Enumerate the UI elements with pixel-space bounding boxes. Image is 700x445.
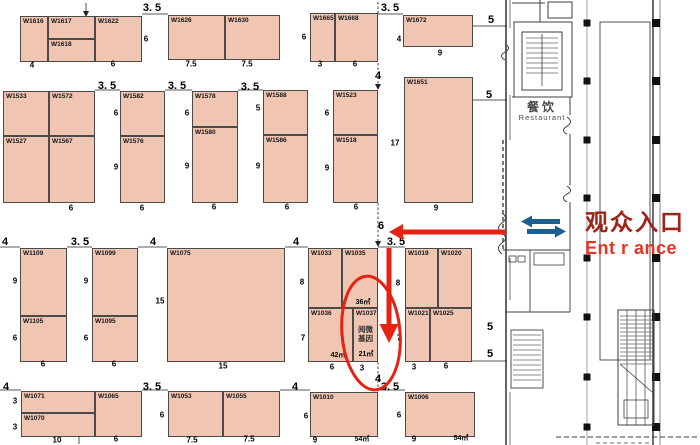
booth-label: W1567 <box>52 138 73 145</box>
booth-W1070: W1070 <box>21 413 95 437</box>
booth-W1109: W1109 <box>20 248 67 316</box>
booth-W1020: W1020 <box>438 248 472 308</box>
dimension-label: 9 <box>412 435 416 444</box>
booth-W1523: W1523 <box>333 90 378 135</box>
dimension-label: 9 <box>313 436 317 445</box>
booth-label: W1578 <box>195 93 216 100</box>
booth-W1588: W1588 <box>263 90 308 135</box>
dimension-label: 3. 5 <box>387 236 405 248</box>
dimension-label: 4 <box>2 236 8 248</box>
dimension-label: 3. 5 <box>71 236 89 248</box>
dimension-label: 9 <box>13 277 17 286</box>
booth-W1065: W1065 <box>95 391 142 437</box>
dimension-label: 3. 5 <box>143 2 161 14</box>
dimension-label: 6 <box>140 204 144 213</box>
booth-label: W1071 <box>24 393 45 400</box>
dimension-label: 5 <box>488 14 494 26</box>
booth-W1576: W1576 <box>120 136 165 203</box>
booth-label: W1006 <box>408 394 429 401</box>
booth-label: W1033 <box>311 250 332 257</box>
booth-label: W1055 <box>226 393 247 400</box>
dimension-label: 6 <box>112 360 116 369</box>
booth-W1095: W1095 <box>92 316 138 362</box>
escalator <box>556 310 698 443</box>
entrance-label-cn: 观众入口 <box>585 203 685 237</box>
booth-W1071: W1071 <box>21 391 95 413</box>
dimension-label: 5 <box>487 348 493 360</box>
booth-W1006: W1006 <box>405 392 475 437</box>
dimension-label: 3 <box>13 423 17 432</box>
dimension-label: 6 <box>397 411 401 420</box>
booth-W1665: W1665 <box>310 13 335 62</box>
dimension-label: 6 <box>111 60 115 69</box>
booth-W1075: W1075 <box>167 248 285 362</box>
dimension-label: 6 <box>13 334 17 343</box>
corridor-walls <box>499 0 573 445</box>
dimension-lines <box>0 2 507 444</box>
booth-W1019: W1019 <box>405 248 438 308</box>
booth-label: W1070 <box>24 415 45 422</box>
booth-W1033: W1033 <box>308 248 342 308</box>
dimension-label: 6 <box>69 204 73 213</box>
booth-W1572: W1572 <box>49 91 95 136</box>
booth-label: W1099 <box>95 250 116 257</box>
booth-W1622: W1622 <box>95 16 142 62</box>
booth-label: W1065 <box>98 393 119 400</box>
booth-W1518: W1518 <box>333 135 378 203</box>
booth-W1651: W1651 <box>404 77 473 203</box>
arrow-right-blue <box>527 226 566 238</box>
dimension-label: 9 <box>185 162 189 171</box>
dimension-label: 7.5 <box>243 435 254 444</box>
dimension-label: 6 <box>354 203 358 212</box>
booth-W1567: W1567 <box>49 136 95 203</box>
booth-label: W1527 <box>6 138 27 145</box>
dimension-label: 6 <box>160 411 164 420</box>
booth-label: W1019 <box>408 250 429 257</box>
dimension-label: 3 <box>318 60 322 69</box>
dimension-label: 6 <box>325 109 329 118</box>
dimension-label: 8 <box>300 278 304 287</box>
dimension-label: 9 <box>325 164 329 173</box>
arrow-left-blue <box>521 216 560 228</box>
booth-label: W1523 <box>336 92 357 99</box>
restaurant-label-en: Restaurant <box>508 113 576 122</box>
dimension-label: 9 <box>114 163 118 172</box>
dimension-label: 7.5 <box>241 60 252 69</box>
area-label: 21㎡ <box>359 349 374 359</box>
dimension-label: 9 <box>84 277 88 286</box>
booth-W1099: W1099 <box>92 248 138 316</box>
area-label: 54㎡ <box>454 433 469 443</box>
dimension-label: 7 <box>397 334 401 343</box>
dimension-label: 6 <box>41 360 45 369</box>
booth-W1021: W1021 <box>405 308 430 362</box>
dimension-label: 6 <box>84 334 88 343</box>
dimension-label: 6 <box>378 220 384 232</box>
dimension-label: 6 <box>114 109 118 118</box>
booth-label: W1010 <box>313 394 334 401</box>
dimension-label: 5 <box>486 89 492 101</box>
booth-W1586: W1586 <box>263 135 308 203</box>
dimension-label: 8 <box>396 279 400 288</box>
booth-W1672: W1672 <box>403 15 473 47</box>
dimension-label: 6 <box>302 33 306 42</box>
booth-label: W1572 <box>52 93 73 100</box>
booth-label: W1618 <box>51 41 72 48</box>
dimension-label: 3. 5 <box>168 80 186 92</box>
booth-W1010: W1010 <box>310 392 378 437</box>
booth-label: W1617 <box>51 18 72 25</box>
dimension-label: 9 <box>256 162 260 171</box>
dimension-label: 3. 5 <box>98 80 116 92</box>
dimension-label: 6 <box>212 203 216 212</box>
area-label: 42㎡ <box>331 350 346 360</box>
booth-W1055: W1055 <box>223 391 280 437</box>
dimension-label: 4 <box>293 236 299 248</box>
dimension-label: 3. 5 <box>143 381 161 393</box>
booth-label: W1105 <box>23 318 43 325</box>
dimension-label: 3. 5 <box>241 81 259 93</box>
dimension-label: 15 <box>219 362 228 371</box>
booth-label: W1036 <box>311 310 332 317</box>
booth-W1533: W1533 <box>3 91 49 136</box>
booth-label: W1021 <box>408 310 429 317</box>
booth-label: W1626 <box>171 17 192 24</box>
booth-label: W1622 <box>98 18 119 25</box>
booth-label: W1588 <box>266 92 287 99</box>
booth-label: W1020 <box>441 250 462 257</box>
entrance-label-en: Ent r ance <box>585 238 677 259</box>
dimension-label: 4 <box>150 236 156 248</box>
dimension-label: 6 <box>330 363 334 372</box>
dimension-label: 4 <box>397 35 401 44</box>
booth-W1025: W1025 <box>430 308 472 362</box>
dimension-label: 4 <box>375 70 381 82</box>
booth-W1630: W1630 <box>225 15 280 60</box>
red-arrow-down <box>380 248 399 343</box>
dimension-label: 3 <box>13 397 17 406</box>
booth-W1053: W1053 <box>168 391 223 437</box>
booth-label: W1035 <box>345 250 366 257</box>
booth-label: W1576 <box>123 138 144 145</box>
dimension-label: 10 <box>53 436 62 445</box>
area-label: 36㎡ <box>356 297 371 307</box>
booth-label: W1518 <box>336 137 357 144</box>
booth-W1580: W1580 <box>192 127 238 203</box>
red-arrow-left <box>389 224 506 240</box>
booth-label: W1025 <box>433 310 454 317</box>
dimension-label: 5 <box>256 104 260 113</box>
dimension-label: 9 <box>434 204 438 213</box>
booth-W1668: W1668 <box>335 13 378 62</box>
booth-W1582: W1582 <box>120 91 165 136</box>
booth-label: W1533 <box>6 93 27 100</box>
booth-label: W1075 <box>170 250 191 257</box>
exhibition-floor-plan: W1616W1617W1618W1622W1626W1630W1665W1668… <box>0 0 700 445</box>
booth-label: W1672 <box>406 17 427 24</box>
dimension-label: 7.5 <box>185 60 196 69</box>
booth-W1578: W1578 <box>192 91 238 127</box>
booth-label: W1095 <box>95 318 116 325</box>
company-label: 阅微基因 <box>354 325 377 343</box>
booth-W1527: W1527 <box>3 136 49 203</box>
dimension-label: 6 <box>185 109 189 118</box>
booth-W1626: W1626 <box>168 15 225 60</box>
booth-label: W1109 <box>23 250 43 257</box>
dimension-label: 3 <box>412 363 416 372</box>
dimension-label: 4 <box>30 61 34 70</box>
dimension-label: 9 <box>438 49 442 58</box>
booth-label: W1037 <box>356 310 377 317</box>
dimension-label: 17 <box>391 139 400 148</box>
dimension-label: 3. 5 <box>381 381 399 393</box>
booth-label: W1580 <box>195 129 216 136</box>
area-label: 54㎡ <box>355 434 370 444</box>
booth-label: W1616 <box>23 18 44 25</box>
dimension-label: 4 <box>375 373 381 385</box>
direction-arrows <box>521 216 566 238</box>
booth-label: W1586 <box>266 137 287 144</box>
booth-label: W1651 <box>407 79 428 86</box>
dimension-label: 6 <box>285 203 289 212</box>
booth-W1617: W1617 <box>48 16 95 39</box>
dimension-label: 4 <box>292 381 298 393</box>
dimension-label: 6 <box>444 362 448 371</box>
dimension-label: 3. 5 <box>381 2 399 14</box>
dimension-label: 6 <box>144 35 148 44</box>
booth-label: W1668 <box>338 15 359 22</box>
dimension-label: 7.5 <box>186 436 197 445</box>
dimension-label: 6 <box>353 60 357 69</box>
booth-label: W1665 <box>313 15 334 22</box>
booth-W1105: W1105 <box>20 316 67 362</box>
dimension-label: 6 <box>304 412 308 421</box>
dimension-label: 3 <box>360 364 364 373</box>
booth-label: W1630 <box>228 17 249 24</box>
dimension-label: 15 <box>156 297 165 306</box>
booth-W1618: W1618 <box>48 39 95 62</box>
booth-W1616: W1616 <box>20 16 48 62</box>
dimension-label: 6 <box>114 435 118 444</box>
dimension-label: 4 <box>3 381 9 393</box>
dimension-label: 7 <box>301 334 305 343</box>
booth-label: W1053 <box>171 393 192 400</box>
dimension-label: 5 <box>487 321 493 333</box>
booth-label: W1582 <box>123 93 144 100</box>
